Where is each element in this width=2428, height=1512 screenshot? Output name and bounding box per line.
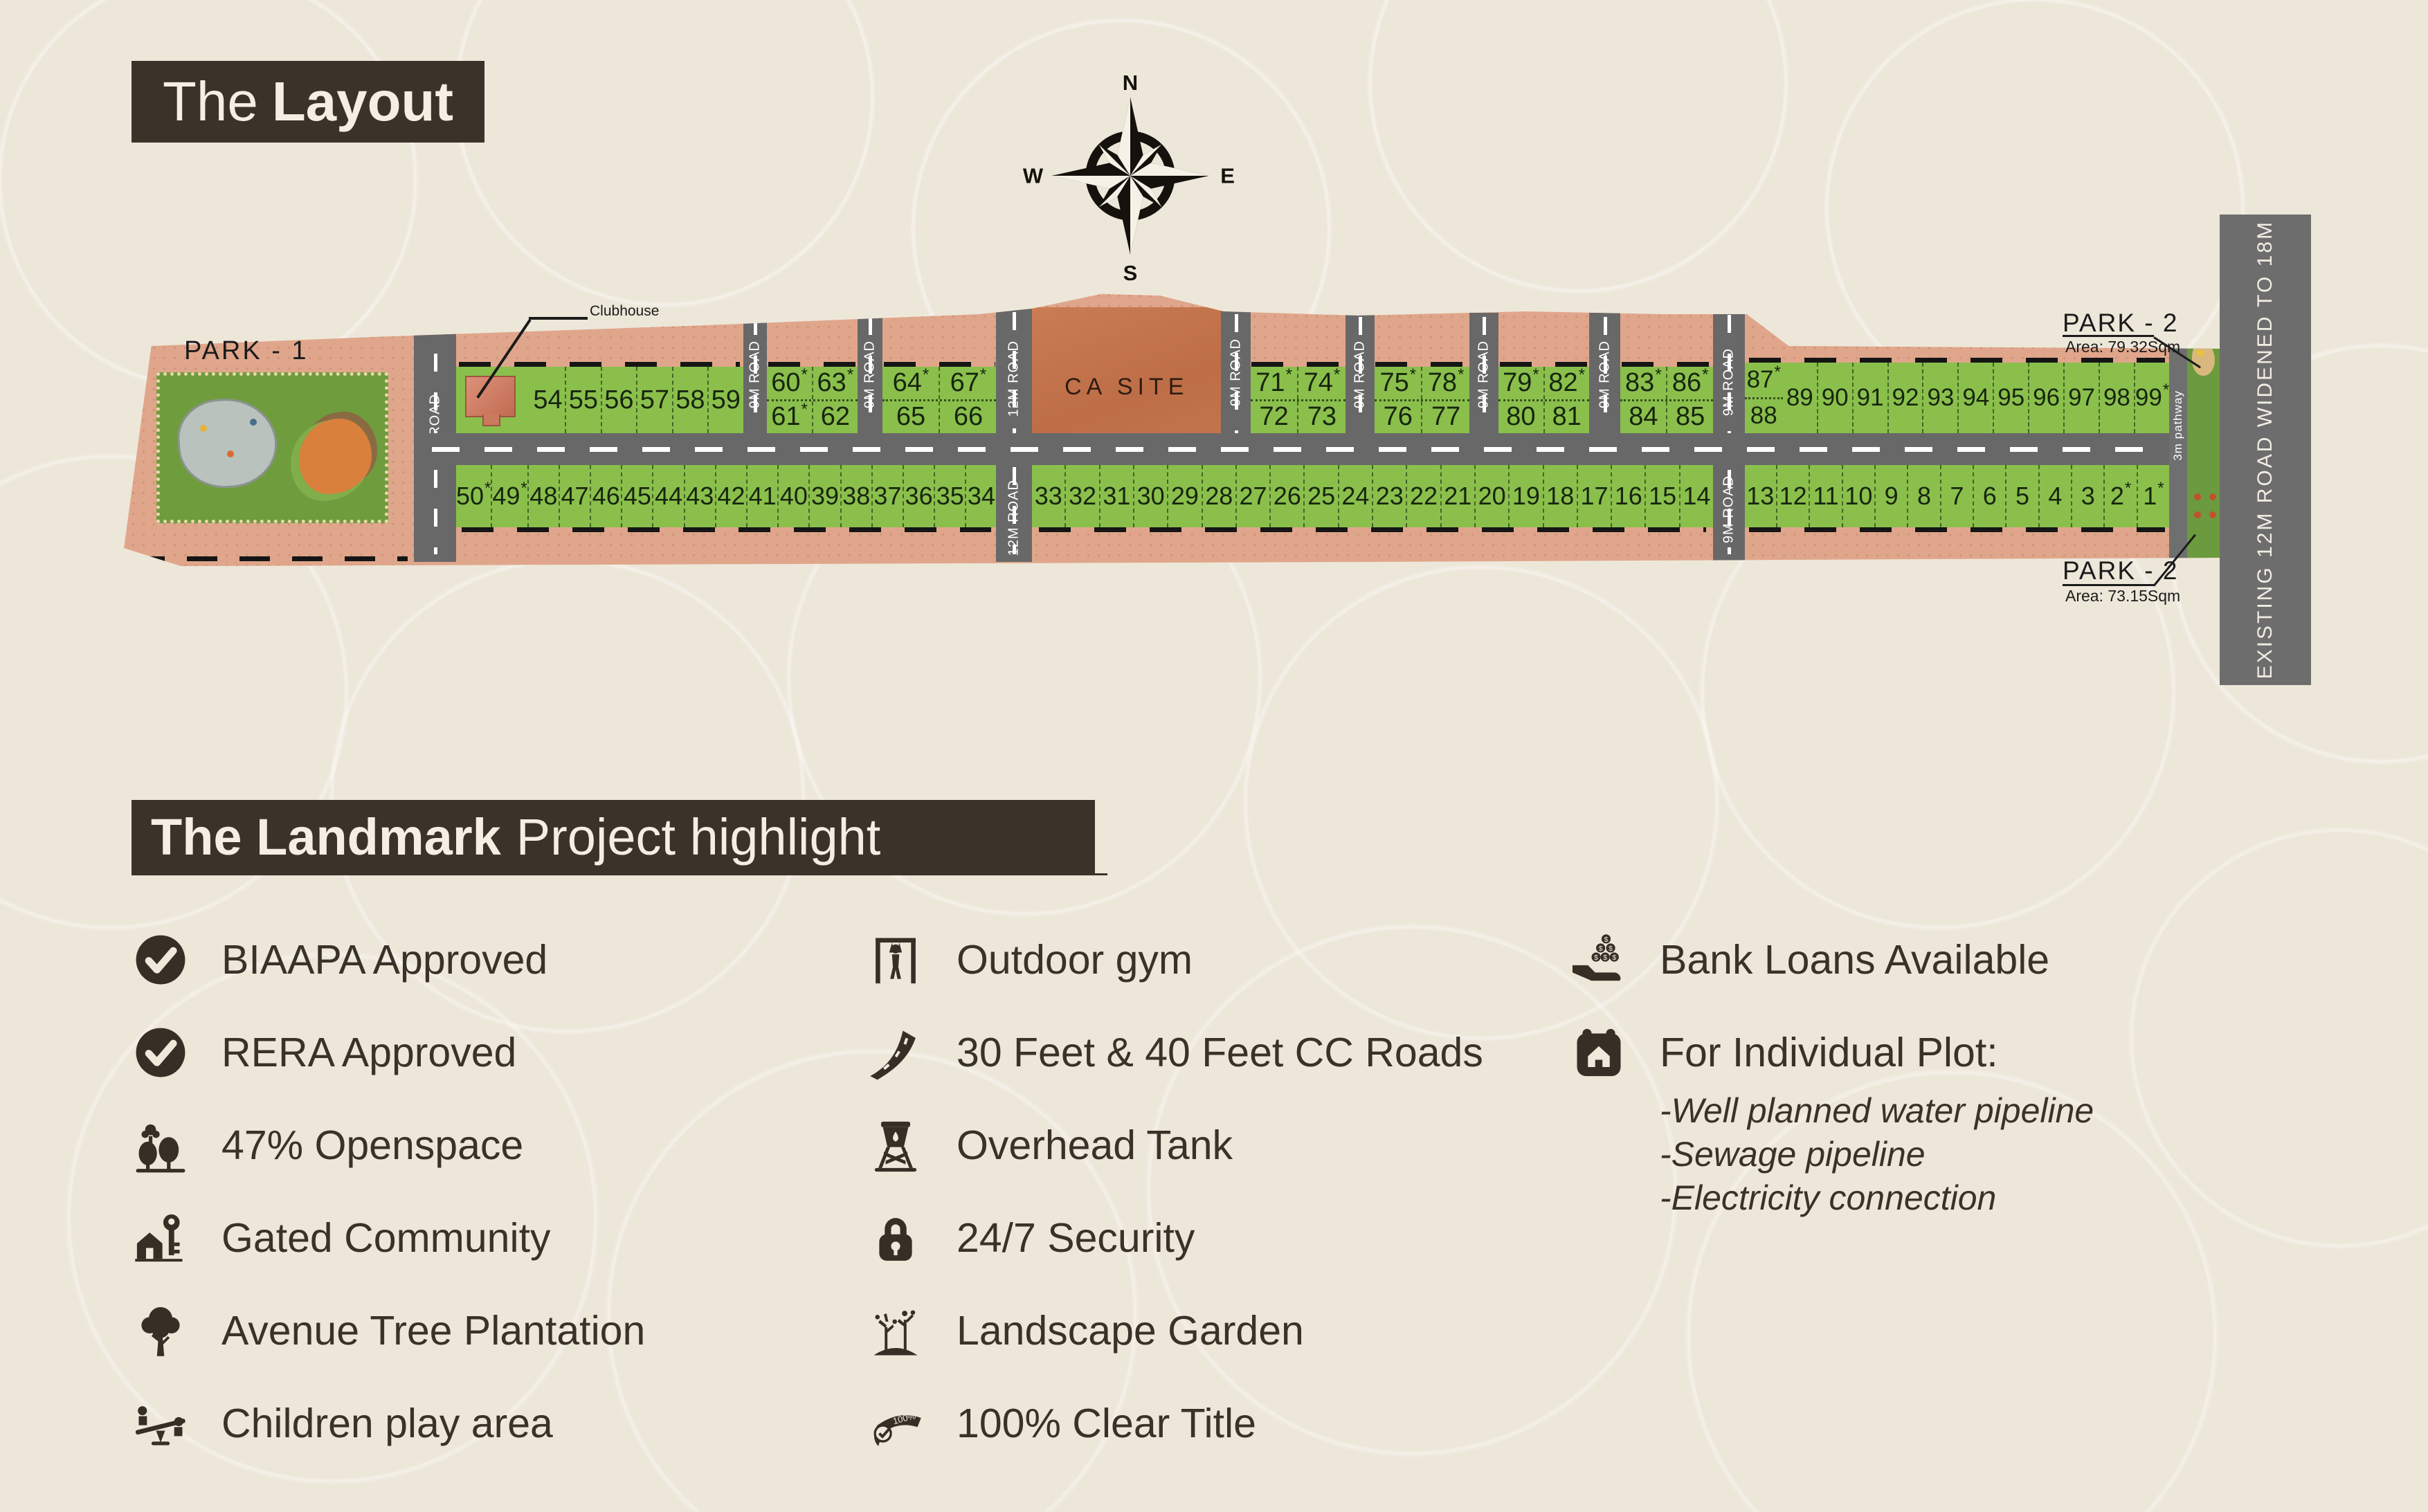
plot-27: 27 bbox=[1235, 465, 1269, 527]
plot-46: 46 bbox=[590, 465, 621, 527]
tree-icon bbox=[118, 291, 137, 309]
plot-22: 22 bbox=[1406, 465, 1440, 527]
plot-12: 12 bbox=[1776, 465, 1809, 527]
tree-icon bbox=[118, 291, 150, 321]
plot-33: 33 bbox=[1032, 465, 1064, 527]
plot-number: 96 bbox=[2033, 384, 2060, 412]
tree-icon bbox=[118, 291, 150, 321]
plots-50-34: 50*49*484746454443424140393837363534 bbox=[456, 465, 997, 527]
tree-icon bbox=[118, 291, 154, 325]
leader-line bbox=[2063, 584, 2154, 586]
plot-subrow: 8485 bbox=[1620, 399, 1713, 434]
plot-37: 37 bbox=[871, 465, 903, 527]
tree-icon bbox=[118, 291, 145, 317]
plot-number: 66 bbox=[954, 402, 983, 432]
plot-number: 9 bbox=[1885, 482, 1899, 511]
highlight-item: 24/7 Security bbox=[867, 1192, 1559, 1284]
tree-icon bbox=[118, 291, 141, 313]
tree-icon bbox=[118, 291, 137, 309]
plot-32: 32 bbox=[1064, 465, 1098, 527]
plot-star: * bbox=[1334, 365, 1340, 385]
plot-number: 37 bbox=[873, 482, 901, 511]
block-54-59: 545556575859 bbox=[456, 367, 743, 433]
highlight-item-main: 30 Feet & 40 Feet CC Roads bbox=[867, 1006, 1483, 1099]
plot-88: 88 bbox=[1745, 397, 1783, 434]
highlight-item: 30 Feet & 40 Feet CC Roads bbox=[867, 1006, 1559, 1099]
tree-icon bbox=[118, 291, 154, 325]
plot-star: * bbox=[2157, 479, 2164, 498]
tree-icon bbox=[118, 291, 141, 313]
plot-93: 93 bbox=[1922, 363, 1957, 433]
plot-number: 38 bbox=[842, 482, 870, 511]
plot-number: 21 bbox=[1444, 482, 1471, 511]
park-2-top-label: PARK - 2 bbox=[2063, 309, 2178, 338]
road-label: 9M ROAD bbox=[1721, 348, 1737, 416]
tree-icon bbox=[118, 291, 154, 325]
plot-number: 95 bbox=[1997, 384, 2024, 412]
plot-star: * bbox=[2125, 479, 2131, 498]
tree-icon bbox=[118, 291, 154, 325]
tree-icon bbox=[118, 291, 154, 325]
plot-number: 13 bbox=[1746, 482, 1774, 511]
page-title-bold: Layout bbox=[272, 70, 453, 134]
plot-number: 36 bbox=[905, 482, 933, 511]
highlight-label: 100% Clear Title bbox=[957, 1400, 1256, 1447]
plot-79: 79* bbox=[1498, 367, 1543, 399]
tree-icon bbox=[118, 291, 141, 313]
tree-icon bbox=[118, 291, 154, 325]
tree-icon bbox=[118, 291, 141, 313]
highlight-column-3: $$$$$$Bank Loans AvailableFor Individual… bbox=[1570, 913, 2414, 1220]
plot-92: 92 bbox=[1887, 363, 1923, 433]
tree-icon bbox=[118, 291, 154, 325]
highlight-item-main: 100%100% Clear Title bbox=[867, 1377, 1256, 1470]
tree-icon bbox=[118, 291, 154, 325]
plot-4: 4 bbox=[2038, 465, 2071, 527]
gated-community-icon bbox=[132, 1209, 190, 1267]
plot-number: 56 bbox=[604, 385, 633, 415]
plot-number: 45 bbox=[624, 482, 651, 511]
plot-20: 20 bbox=[1474, 465, 1508, 527]
highlight-label: RERA Approved bbox=[221, 1029, 516, 1076]
tree-icon bbox=[118, 291, 150, 321]
plot-21: 21 bbox=[1440, 465, 1474, 527]
tree-icon bbox=[118, 291, 150, 321]
park-boundary-dash bbox=[134, 328, 408, 333]
plot-number: 92 bbox=[1892, 384, 1919, 412]
children-play-icon bbox=[132, 1394, 190, 1452]
plot-49: 49* bbox=[491, 465, 527, 527]
plot-number: 15 bbox=[1649, 482, 1676, 511]
highlight-label: Avenue Tree Plantation bbox=[221, 1307, 645, 1354]
highlight-item-main: Children play area bbox=[132, 1377, 553, 1470]
playground-item bbox=[308, 465, 315, 472]
pathway-label: 3m pathway bbox=[2171, 390, 2185, 461]
plot-36: 36 bbox=[903, 465, 934, 527]
tree-icon bbox=[118, 291, 145, 317]
plots-87-88: 87*88 bbox=[1745, 363, 1783, 433]
plots-13-1: 1312111098765432*1* bbox=[1745, 465, 2169, 527]
compass-rose-icon: N E S W bbox=[1023, 66, 1238, 285]
outdoor-gym-icon bbox=[867, 931, 925, 989]
plot-73: 73 bbox=[1297, 401, 1345, 434]
tree-icon bbox=[118, 291, 141, 313]
plot-3: 3 bbox=[2071, 465, 2103, 527]
road-label: 9M ROAD bbox=[1228, 338, 1244, 406]
plot-14: 14 bbox=[1679, 465, 1713, 527]
plot-76: 76 bbox=[1375, 401, 1421, 434]
plot-star: * bbox=[1532, 365, 1539, 385]
tree-icon bbox=[118, 291, 145, 317]
highlight-item-main: Outdoor gym bbox=[867, 913, 1193, 1006]
highlight-item-main: $$$$$$Bank Loans Available bbox=[1570, 913, 2049, 1006]
tree-icon bbox=[118, 291, 154, 325]
tree-icon bbox=[118, 291, 137, 309]
tree-icon bbox=[118, 291, 150, 321]
tree-icon bbox=[118, 291, 145, 317]
plot-subrow: 75*78* bbox=[1375, 367, 1469, 399]
plot-number: 3 bbox=[2081, 482, 2095, 511]
plot-10: 10 bbox=[1842, 465, 1874, 527]
plot-2: 2* bbox=[2103, 465, 2136, 527]
plot-number: 48 bbox=[529, 482, 557, 511]
plot-number: 16 bbox=[1615, 482, 1642, 511]
plot-number: 94 bbox=[1962, 384, 1989, 412]
highlight-label: BIAAPA Approved bbox=[221, 936, 547, 983]
compass-south-label: S bbox=[1123, 261, 1138, 285]
tree-icon bbox=[118, 291, 145, 317]
highlight-label: Outdoor gym bbox=[957, 936, 1193, 983]
plot-97: 97 bbox=[2063, 363, 2099, 433]
plot-74: 74* bbox=[1297, 367, 1345, 399]
plot-7: 7 bbox=[1940, 465, 1973, 527]
tree-icon bbox=[118, 291, 137, 309]
plot-8: 8 bbox=[1907, 465, 1939, 527]
plot-number: 83 bbox=[1625, 368, 1654, 398]
playground-item bbox=[250, 419, 257, 426]
plot-number: 43 bbox=[686, 482, 714, 511]
plot-number: 61 bbox=[771, 402, 800, 432]
highlight-item: RERA Approved bbox=[132, 1006, 844, 1099]
highlight-item-main: 47% Openspace bbox=[132, 1099, 523, 1192]
plot-90: 90 bbox=[1817, 363, 1852, 433]
plot-subrow: 6566 bbox=[882, 399, 996, 434]
plot-star: * bbox=[847, 365, 853, 385]
plot-39: 39 bbox=[808, 465, 840, 527]
plot-1: 1* bbox=[2137, 465, 2169, 527]
tree-icon bbox=[118, 291, 137, 309]
highlight-label: Landscape Garden bbox=[957, 1307, 1304, 1354]
highlight-label: 47% Openspace bbox=[221, 1122, 523, 1169]
highlight-item-main: 24/7 Security bbox=[867, 1192, 1195, 1284]
plot-65: 65 bbox=[882, 401, 939, 434]
tree-icon bbox=[118, 291, 154, 325]
plot-subrow: 79*82* bbox=[1498, 367, 1589, 399]
tree-icon bbox=[118, 291, 137, 309]
plot-number: 6 bbox=[1983, 482, 1997, 511]
tree-icon bbox=[118, 291, 154, 325]
plot-number: 99 bbox=[2135, 384, 2162, 412]
plot-24: 24 bbox=[1338, 465, 1372, 527]
tree-icon bbox=[118, 291, 145, 317]
plot-number: 8 bbox=[1917, 482, 1931, 511]
tree-icon bbox=[118, 291, 137, 309]
tree-icon bbox=[118, 291, 145, 317]
tree-icon bbox=[118, 291, 137, 309]
tree-icon bbox=[118, 291, 137, 309]
highlight-label: 24/7 Security bbox=[957, 1214, 1195, 1261]
tree-icon bbox=[118, 291, 145, 317]
plot-star: * bbox=[923, 365, 929, 385]
highlight-item: Avenue Tree Plantation bbox=[132, 1284, 844, 1377]
svg-text:$: $ bbox=[1612, 954, 1616, 962]
leader-line bbox=[2063, 335, 2154, 337]
highlight-subitem: -Electricity connection bbox=[1660, 1176, 2094, 1220]
highlight-subitem: -Well planned water pipeline bbox=[1660, 1089, 2094, 1133]
plot-80: 80 bbox=[1498, 401, 1543, 434]
tree-icon bbox=[118, 291, 150, 321]
plot-85: 85 bbox=[1666, 401, 1713, 434]
tree-icon bbox=[118, 291, 137, 309]
plots-54-59: 545556575859 bbox=[531, 367, 743, 433]
highlight-item-main: Gated Community bbox=[132, 1192, 550, 1284]
highlight-column-1: BIAAPA ApprovedRERA Approved47% Openspac… bbox=[132, 913, 844, 1470]
tree-icon bbox=[118, 291, 150, 321]
plot-number: 27 bbox=[1240, 482, 1267, 511]
plot-number: 29 bbox=[1171, 482, 1199, 511]
plot-star: * bbox=[484, 479, 491, 498]
tree-icon bbox=[118, 291, 141, 313]
plot-number: 46 bbox=[592, 482, 620, 511]
plot-number: 39 bbox=[811, 482, 839, 511]
highlight-item-main: Overhead Tank bbox=[867, 1099, 1233, 1192]
plot-number: 80 bbox=[1506, 402, 1535, 432]
plot-86: 86* bbox=[1666, 367, 1713, 399]
plot-82: 82* bbox=[1543, 367, 1589, 399]
plot-star: * bbox=[1655, 365, 1661, 385]
check-badge-icon bbox=[132, 931, 190, 989]
tree-icon bbox=[118, 291, 137, 309]
tree-icon bbox=[118, 291, 141, 313]
plot-number: 65 bbox=[896, 402, 925, 432]
existing-road-bar: EXISTING 12M ROAD WIDENED TO 18M bbox=[2220, 215, 2311, 685]
plot-star: * bbox=[1775, 363, 1781, 382]
clubhouse-label: Clubhouse bbox=[590, 303, 659, 320]
plot-number: 75 bbox=[1379, 368, 1408, 398]
block-83-86: 83*86*8485 bbox=[1620, 367, 1713, 433]
tree-icon bbox=[118, 291, 141, 313]
road-label: 9M ROAD bbox=[862, 340, 878, 408]
plot-11: 11 bbox=[1809, 465, 1841, 527]
page-title-light: The bbox=[163, 70, 258, 134]
plot-41: 41 bbox=[746, 465, 777, 527]
existing-road-label: EXISTING 12M ROAD WIDENED TO 18M bbox=[2254, 220, 2277, 679]
tree-icon bbox=[118, 291, 137, 309]
plot-29: 29 bbox=[1167, 465, 1201, 527]
plot-subrow: 71*74* bbox=[1251, 367, 1346, 399]
tree-icon bbox=[118, 291, 145, 317]
tree-icon bbox=[118, 291, 141, 313]
playground-item bbox=[200, 425, 207, 432]
plot-35: 35 bbox=[934, 465, 965, 527]
plot-23: 23 bbox=[1372, 465, 1406, 527]
svg-text:$: $ bbox=[1604, 936, 1609, 944]
plot-number: 55 bbox=[569, 385, 598, 415]
tree-icon bbox=[118, 291, 141, 313]
tree-icon bbox=[118, 291, 154, 325]
tree-icon bbox=[118, 291, 154, 325]
tree-icon bbox=[118, 291, 137, 309]
plot-number: 2 bbox=[2110, 482, 2124, 511]
plot-50: 50* bbox=[456, 465, 491, 527]
plot-19: 19 bbox=[1508, 465, 1542, 527]
plot-26: 26 bbox=[1269, 465, 1303, 527]
road-9m-vertical: 9M ROAD bbox=[858, 313, 882, 440]
plot-subrow: 7273 bbox=[1251, 399, 1346, 434]
plot-number: 73 bbox=[1307, 402, 1337, 432]
plot-number: 64 bbox=[893, 368, 922, 398]
plot-star: * bbox=[980, 365, 986, 385]
tree-icon bbox=[118, 291, 145, 317]
main-road bbox=[414, 433, 2169, 465]
bank-loans-icon: $$$$$$ bbox=[1570, 931, 1628, 989]
plot-44: 44 bbox=[652, 465, 683, 527]
security-lock-icon bbox=[867, 1209, 925, 1267]
clubhouse-building bbox=[465, 376, 516, 417]
plot-number: 10 bbox=[1845, 482, 1872, 511]
highlight-sublist: -Well planned water pipeline-Sewage pipe… bbox=[1660, 1089, 2094, 1220]
plot-81: 81 bbox=[1543, 401, 1589, 434]
highlight-item: Children play area bbox=[132, 1377, 844, 1470]
tree-icon bbox=[118, 291, 141, 313]
plot-62: 62 bbox=[812, 401, 858, 434]
plot-number: 17 bbox=[1580, 482, 1608, 511]
plot-number: 58 bbox=[676, 385, 705, 415]
compass-west-label: W bbox=[1023, 163, 1044, 188]
tree-icon bbox=[118, 291, 145, 317]
plot-54: 54 bbox=[531, 367, 565, 433]
plot-number: 87 bbox=[1747, 366, 1774, 394]
tree-icon bbox=[118, 291, 141, 313]
highlight-item-main: BIAAPA Approved bbox=[132, 913, 547, 1006]
tree-icon bbox=[118, 291, 150, 321]
tree-icon bbox=[118, 291, 150, 321]
plot-78: 78* bbox=[1421, 367, 1469, 399]
plot-star: * bbox=[520, 479, 527, 498]
plot-number: 57 bbox=[640, 385, 669, 415]
highlight-title: The Landmark Project highlight bbox=[132, 800, 1095, 873]
plot-71: 71* bbox=[1251, 367, 1297, 399]
plot-16: 16 bbox=[1611, 465, 1645, 527]
park-boundary-dash bbox=[134, 556, 408, 561]
tree-icon bbox=[118, 291, 137, 309]
plot-84: 84 bbox=[1620, 401, 1666, 434]
tree-icon bbox=[118, 291, 150, 321]
plot-number: 33 bbox=[1035, 482, 1062, 511]
tree-icon bbox=[118, 291, 150, 321]
plot-number: 72 bbox=[1259, 402, 1288, 432]
plot-number: 91 bbox=[1857, 384, 1884, 412]
plot-59: 59 bbox=[707, 367, 743, 433]
plot-star: * bbox=[801, 400, 808, 419]
highlight-item-main: RERA Approved bbox=[132, 1006, 516, 1099]
plot-star: * bbox=[1410, 365, 1416, 385]
plot-number: 4 bbox=[2048, 482, 2062, 511]
tree-icon bbox=[118, 291, 145, 317]
plot-31: 31 bbox=[1099, 465, 1133, 527]
highlight-title-light: Project highlight bbox=[516, 808, 881, 866]
plot-64: 64* bbox=[882, 367, 939, 399]
tree-icon bbox=[118, 291, 154, 325]
tree-icon bbox=[118, 291, 141, 313]
tree-icon bbox=[118, 291, 141, 313]
plot-57: 57 bbox=[636, 367, 671, 433]
tree-icon bbox=[118, 291, 145, 317]
tree-icon bbox=[118, 291, 150, 321]
road-label: 12M ROAD bbox=[1006, 480, 1022, 556]
road-label: 9M ROAD bbox=[747, 340, 763, 408]
park-1-area bbox=[118, 335, 414, 567]
tree-icon bbox=[118, 291, 150, 321]
plot-42: 42 bbox=[715, 465, 746, 527]
tree-icon bbox=[118, 291, 154, 325]
plot-28: 28 bbox=[1202, 465, 1235, 527]
plot-number: 7 bbox=[1950, 482, 1964, 511]
road-9m-vertical: 9M ROAD bbox=[1346, 313, 1375, 440]
highlight-item: 47% Openspace bbox=[132, 1099, 844, 1192]
park-2-bottom-area: Area: 73.15Sqm bbox=[2065, 587, 2180, 605]
park-1-label: PARK - 1 bbox=[184, 336, 309, 366]
plot-star: * bbox=[801, 365, 808, 385]
tree-icon bbox=[118, 291, 150, 321]
plot-number: 24 bbox=[1341, 482, 1369, 511]
plot-77: 77 bbox=[1421, 401, 1469, 434]
plot-number: 62 bbox=[821, 402, 850, 432]
plot-number: 30 bbox=[1137, 482, 1165, 511]
road-label: 9M ROAD bbox=[1721, 475, 1737, 543]
plot-number: 79 bbox=[1503, 368, 1532, 398]
highlight-item: Outdoor gym bbox=[867, 913, 1559, 1006]
plot-6: 6 bbox=[1973, 465, 2005, 527]
tree-icon bbox=[118, 291, 141, 313]
park-2-area bbox=[2187, 324, 2220, 559]
plot-55: 55 bbox=[565, 367, 600, 433]
plot-star: * bbox=[1702, 365, 1708, 385]
highlight-label: Gated Community bbox=[221, 1214, 550, 1261]
plot-number: 93 bbox=[1927, 384, 1954, 412]
plot-number: 18 bbox=[1546, 482, 1574, 511]
tree-icon bbox=[118, 291, 145, 317]
block-75-78: 75*78*7677 bbox=[1375, 367, 1469, 433]
plot-number: 76 bbox=[1384, 402, 1413, 432]
plot-number: 60 bbox=[771, 368, 800, 398]
plot-star: * bbox=[1579, 365, 1585, 385]
ca-site-label: CA SITE bbox=[1064, 374, 1188, 401]
plot-67: 67* bbox=[939, 367, 996, 399]
plot-number: 34 bbox=[968, 482, 995, 511]
tree-icon bbox=[118, 291, 150, 321]
block-87-99: 87*88 8990919293949596979899* bbox=[1745, 363, 2169, 433]
plot-number: 26 bbox=[1274, 482, 1301, 511]
tree-icon bbox=[118, 291, 150, 321]
plot-15: 15 bbox=[1645, 465, 1678, 527]
highlight-item: 100%100% Clear Title bbox=[867, 1377, 1559, 1470]
plot-number: 23 bbox=[1376, 482, 1404, 511]
tree-icon bbox=[118, 291, 137, 309]
page-title: The Layout bbox=[132, 61, 484, 143]
compass-east-label: E bbox=[1220, 163, 1235, 188]
plot-72: 72 bbox=[1251, 401, 1297, 434]
